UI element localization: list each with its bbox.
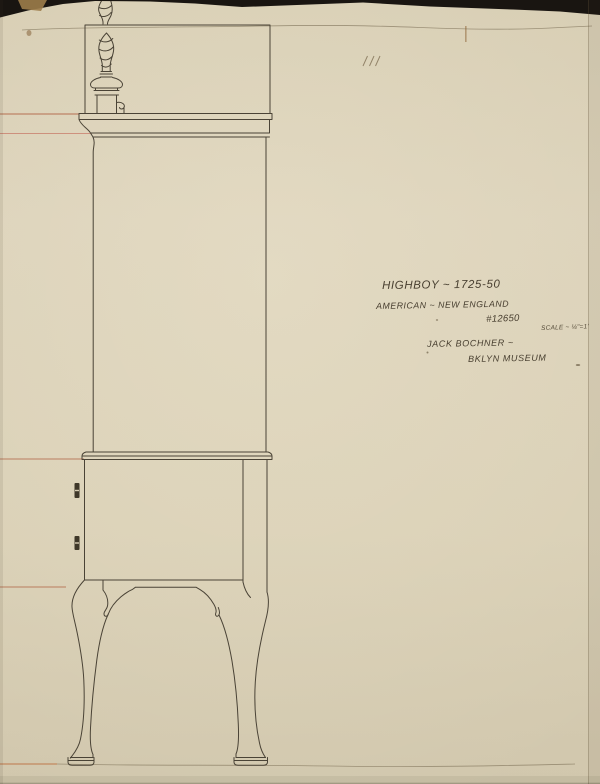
flame-finial <box>99 33 114 72</box>
finial-cup <box>91 78 123 91</box>
finial-collar <box>100 72 113 78</box>
front-leg-inner <box>90 614 108 758</box>
drawing-sheet: HIGHBOY ~ 1725-50 AMERICAN ~ NEW ENGLAND… <box>0 0 600 784</box>
rear-knee-bracket <box>243 582 251 598</box>
sheet-edges <box>0 0 600 784</box>
cornice <box>79 114 272 138</box>
guide-lines <box>0 114 91 764</box>
lower-case <box>85 460 268 593</box>
museum-annotation: BKLYN MUSEUM <box>468 353 547 364</box>
highboy-drawing <box>68 0 272 765</box>
object-number-annotation: #12650 <box>486 313 520 325</box>
hinge-marks <box>75 483 80 550</box>
upper-case-sides <box>93 137 266 452</box>
highboy-elevation-svg <box>0 0 600 784</box>
artist-annotation: JACK BOCHNER ~ <box>427 337 514 349</box>
waist-molding <box>82 452 272 460</box>
rear-leg-outer <box>255 592 269 758</box>
apron <box>103 587 220 616</box>
rear-leg-inner <box>219 615 239 758</box>
scan-edge-top <box>0 0 600 18</box>
title-annotation: HIGHBOY ~ 1725-50 <box>382 279 500 292</box>
front-leg-outer <box>70 580 84 758</box>
finial-top-fragment <box>99 0 113 24</box>
rear-pad-foot <box>234 758 268 766</box>
finial-plinth <box>95 95 124 114</box>
